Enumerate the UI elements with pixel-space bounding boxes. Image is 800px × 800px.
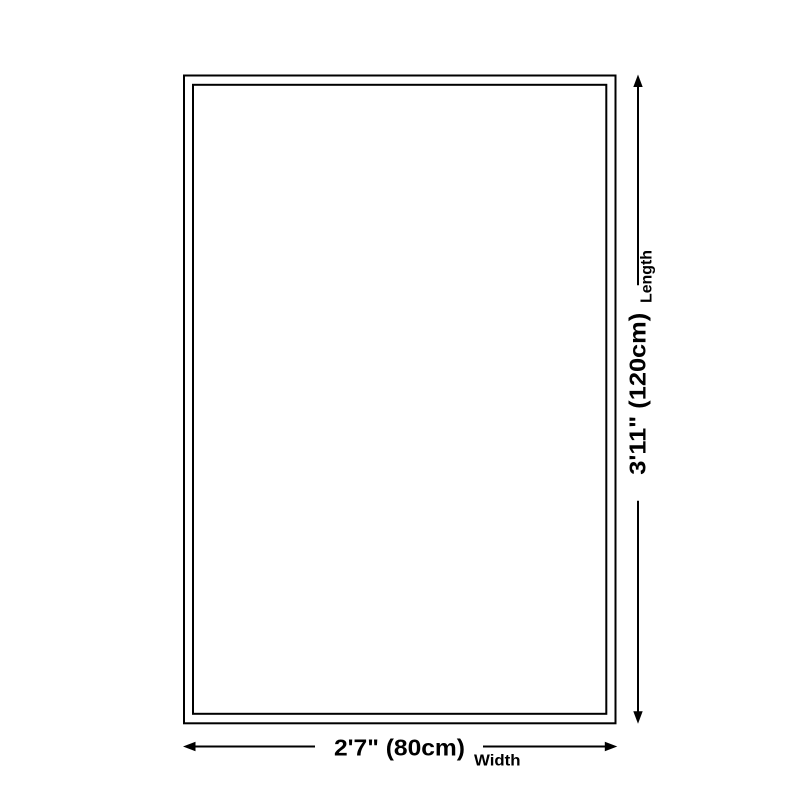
svg-text:3'11" (120cm): 3'11" (120cm) <box>625 313 651 475</box>
svg-text:2'7" (80cm): 2'7" (80cm) <box>334 734 465 760</box>
svg-text:Length: Length <box>639 250 656 303</box>
svg-text:Width: Width <box>474 753 521 770</box>
